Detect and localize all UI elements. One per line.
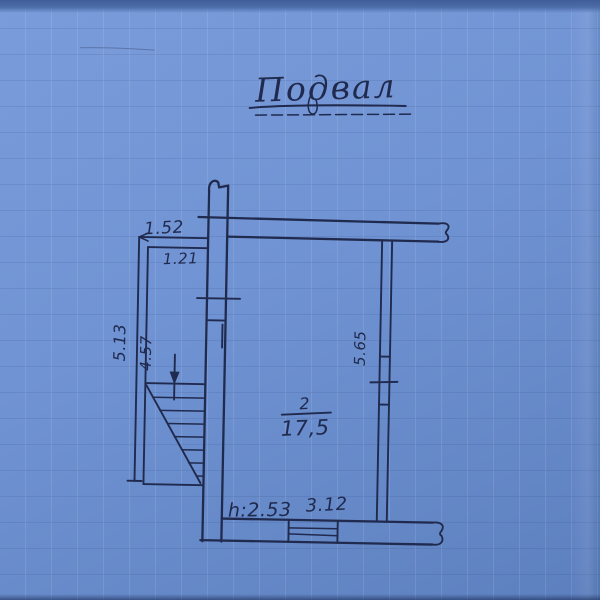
floor-plan-photo: Подвал — [0, 0, 600, 600]
photo-vignette — [0, 0, 600, 600]
photo-right-edge — [570, 0, 600, 600]
photo-bottom-edge — [0, 594, 600, 600]
photo-top-edge — [0, 0, 600, 13]
